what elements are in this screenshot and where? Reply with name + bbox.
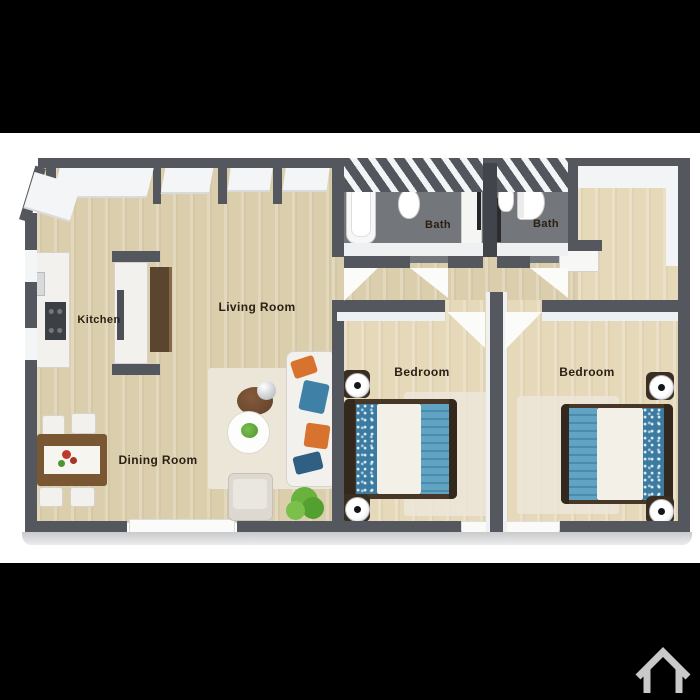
wall bbox=[337, 300, 445, 312]
bed-blanket bbox=[569, 408, 597, 500]
window-blinds bbox=[344, 158, 483, 192]
sphere-lamp bbox=[257, 381, 276, 400]
room-label-bedroom2: Bedroom bbox=[559, 365, 614, 379]
door-swing bbox=[505, 312, 542, 350]
screenshot-root: Kitchen Living Room Dining Room Bath Bat… bbox=[0, 0, 700, 700]
wall bbox=[448, 256, 483, 268]
table-plant bbox=[241, 423, 258, 438]
dining-chair bbox=[42, 415, 65, 436]
window-sill bbox=[578, 166, 678, 188]
dining-chair bbox=[71, 413, 96, 434]
door-swing bbox=[530, 268, 568, 298]
wall bbox=[332, 300, 344, 532]
dining-chair bbox=[70, 487, 95, 507]
kitchen-cooktop bbox=[45, 302, 66, 340]
window-sill bbox=[282, 168, 329, 192]
window-sill bbox=[666, 166, 678, 266]
footboard bbox=[449, 399, 457, 499]
door-swing bbox=[410, 268, 448, 298]
letterbox-top bbox=[0, 0, 700, 133]
refrigerator bbox=[150, 267, 172, 352]
wall bbox=[483, 163, 497, 257]
wall bbox=[678, 158, 690, 532]
door-swing bbox=[344, 268, 378, 301]
room-label-kitchen: Kitchen bbox=[77, 314, 120, 326]
window-sill bbox=[227, 168, 272, 192]
headboard bbox=[664, 404, 673, 504]
room-label-bath1: Bath bbox=[425, 219, 451, 231]
bed-duvet bbox=[597, 408, 643, 500]
room-label-bedroom1: Bedroom bbox=[394, 365, 449, 379]
floor-plant bbox=[286, 501, 305, 520]
wall bbox=[218, 166, 227, 204]
room-label-bath2: Bath bbox=[533, 218, 559, 230]
window-sill bbox=[25, 250, 37, 282]
letterbox-bottom bbox=[0, 563, 700, 700]
window-sill bbox=[161, 168, 214, 194]
nightstand-lamp bbox=[354, 506, 361, 513]
bed-blanket bbox=[421, 404, 449, 494]
wall bbox=[568, 240, 602, 251]
wall bbox=[112, 364, 160, 375]
wall bbox=[542, 300, 678, 312]
door-swing bbox=[447, 312, 485, 348]
wall bbox=[112, 251, 160, 262]
headboard bbox=[344, 399, 355, 499]
bathtub-basin bbox=[351, 187, 371, 237]
nightstand-lamp bbox=[354, 382, 361, 389]
plan-shadow bbox=[22, 532, 692, 545]
flower-centerpiece bbox=[70, 457, 77, 464]
room-label-living-room: Living Room bbox=[218, 300, 295, 314]
dining-chair bbox=[39, 487, 63, 507]
floor-plant bbox=[302, 497, 324, 519]
nightstand-lamp bbox=[658, 384, 665, 391]
wall bbox=[558, 521, 690, 532]
window-sill bbox=[25, 328, 37, 360]
nightstand-lamp bbox=[658, 508, 665, 515]
window-blinds bbox=[497, 158, 568, 192]
wall-face bbox=[344, 243, 483, 256]
house-outline-icon[interactable] bbox=[634, 639, 692, 695]
bed-duvet bbox=[377, 404, 421, 494]
footboard bbox=[561, 404, 569, 504]
wall bbox=[490, 292, 503, 532]
armchair-seat bbox=[233, 479, 267, 509]
bed-pillows bbox=[643, 408, 664, 500]
wall-face bbox=[497, 243, 568, 256]
toilet-bowl bbox=[398, 189, 420, 219]
wall bbox=[332, 158, 344, 257]
wall bbox=[497, 256, 530, 268]
wall-face bbox=[337, 312, 445, 321]
room-label-dining-room: Dining Room bbox=[118, 453, 197, 467]
wall bbox=[237, 521, 463, 532]
wall bbox=[153, 166, 161, 204]
bed-pillows bbox=[356, 404, 377, 494]
wall bbox=[344, 256, 410, 268]
wall bbox=[568, 158, 578, 251]
sofa-pillow-orange bbox=[303, 422, 330, 449]
shower-fixture bbox=[477, 192, 481, 230]
wall bbox=[273, 166, 282, 204]
wall bbox=[25, 521, 127, 532]
flower-leaves bbox=[58, 460, 65, 467]
wall-face bbox=[542, 312, 678, 321]
